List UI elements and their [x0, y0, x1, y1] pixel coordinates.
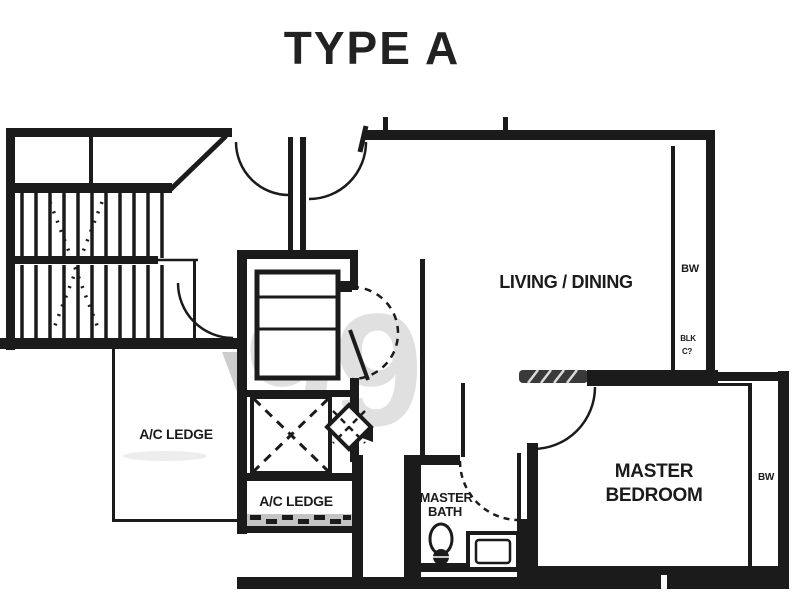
basin-icon	[468, 533, 518, 569]
living-top-wall	[365, 117, 715, 140]
bay-window-label-living: BW	[681, 263, 700, 275]
stair-treads-lower	[22, 265, 162, 338]
master-bedroom: BW MASTER BEDROOM	[519, 370, 789, 577]
floor-plan-page: 99 TYPE A	[0, 0, 800, 593]
entry-door-arc-right	[309, 142, 366, 199]
kitchen-counter	[257, 272, 352, 378]
stair-treads-upper	[22, 193, 162, 258]
bedroom-window-hatch	[519, 370, 588, 383]
shaft-small-text-line2: C?	[682, 347, 692, 356]
toilet-icon	[430, 524, 452, 565]
master-bath-label-line1: MASTER	[419, 490, 473, 505]
master-bath: MASTER BATH	[404, 453, 527, 577]
ac-ledge-left: A/C LEDGE	[112, 349, 237, 522]
master-bath-label-line2: BATH	[428, 504, 462, 519]
entry-door-arc-left	[236, 142, 289, 195]
shaft-small-text-line1: BLK	[680, 334, 696, 343]
landing-door-arc	[178, 283, 233, 338]
watermark-fragment	[222, 352, 237, 392]
stair-direction-arrow	[50, 202, 102, 328]
ac-ledge-left-label: A/C LEDGE	[139, 426, 213, 442]
living-bay-window: BW BLK C?	[671, 130, 715, 376]
ac-ledge-bottom-label: A/C LEDGE	[259, 493, 333, 509]
living-dining-label: LIVING / DINING	[499, 272, 633, 292]
bottom-boundary-wall	[237, 575, 789, 589]
bath-door-leaf	[517, 453, 521, 521]
stairwell	[0, 128, 243, 350]
floor-plan-drawing: 99 TYPE A	[0, 0, 800, 593]
page-title: TYPE A	[284, 22, 460, 74]
entrance	[236, 126, 366, 257]
master-bedroom-label-line2: BEDROOM	[605, 485, 702, 506]
master-bedroom-label-line1: MASTER	[615, 461, 694, 482]
bay-window-label-bedroom: BW	[758, 472, 775, 483]
watermark-smudge	[123, 451, 207, 461]
bedroom-door-arc	[533, 387, 595, 449]
